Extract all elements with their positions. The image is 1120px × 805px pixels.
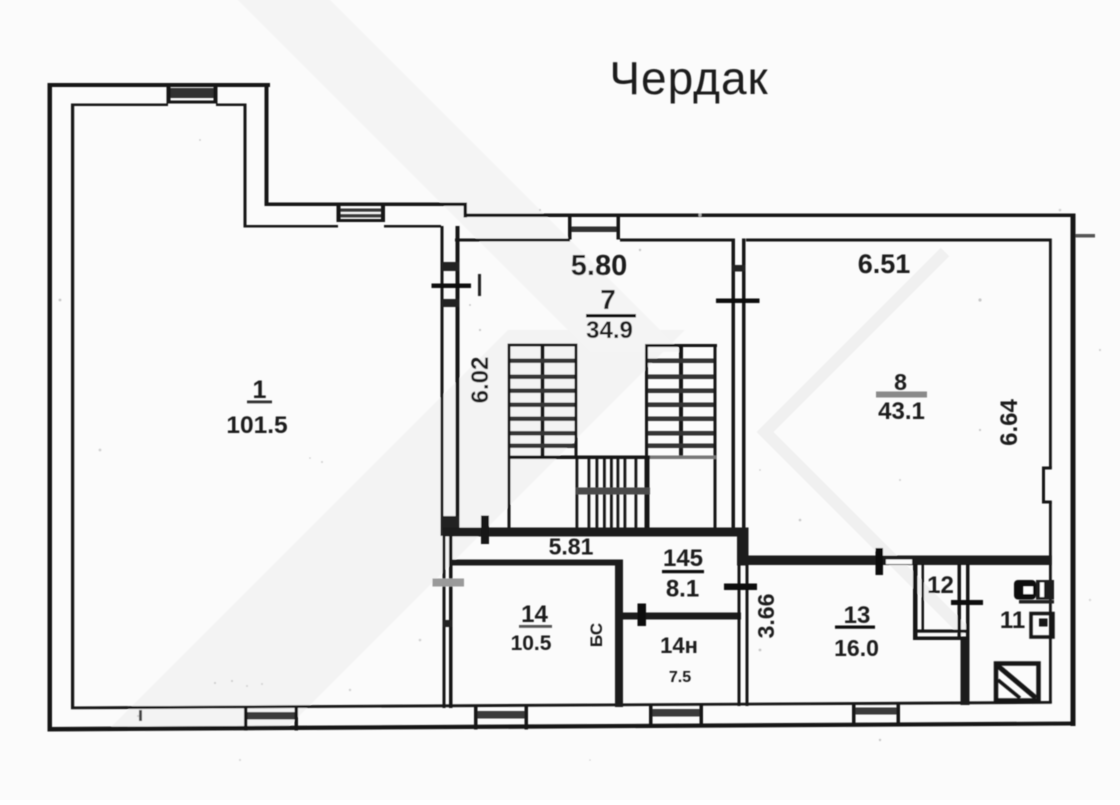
svg-text:7.5: 7.5: [669, 669, 691, 686]
svg-text:11: 11: [1000, 607, 1025, 634]
svg-text:12: 12: [927, 572, 954, 599]
svg-text:14: 14: [521, 601, 548, 628]
svg-text:8: 8: [894, 369, 907, 395]
svg-text:5.80: 5.80: [571, 250, 627, 282]
svg-text:3.66: 3.66: [753, 594, 779, 639]
svg-text:16.0: 16.0: [834, 635, 879, 661]
svg-text:7: 7: [600, 284, 616, 315]
svg-text:43.1: 43.1: [878, 398, 925, 425]
svg-text:101.5: 101.5: [226, 412, 287, 439]
svg-text:13: 13: [844, 602, 871, 629]
svg-text:6.64: 6.64: [996, 398, 1023, 445]
svg-text:Чердак: Чердак: [609, 52, 768, 104]
svg-text:6.02: 6.02: [467, 357, 494, 404]
svg-text:5.81: 5.81: [549, 534, 594, 560]
svg-text:6.51: 6.51: [858, 249, 911, 279]
svg-text:8.1: 8.1: [666, 576, 699, 603]
svg-text:1: 1: [253, 376, 267, 404]
svg-text:10.5: 10.5: [511, 632, 552, 655]
svg-text:145: 145: [663, 545, 703, 572]
svg-text:34.9: 34.9: [586, 317, 633, 344]
svg-text:БС: БС: [587, 623, 606, 647]
svg-text:14н: 14н: [660, 633, 698, 658]
